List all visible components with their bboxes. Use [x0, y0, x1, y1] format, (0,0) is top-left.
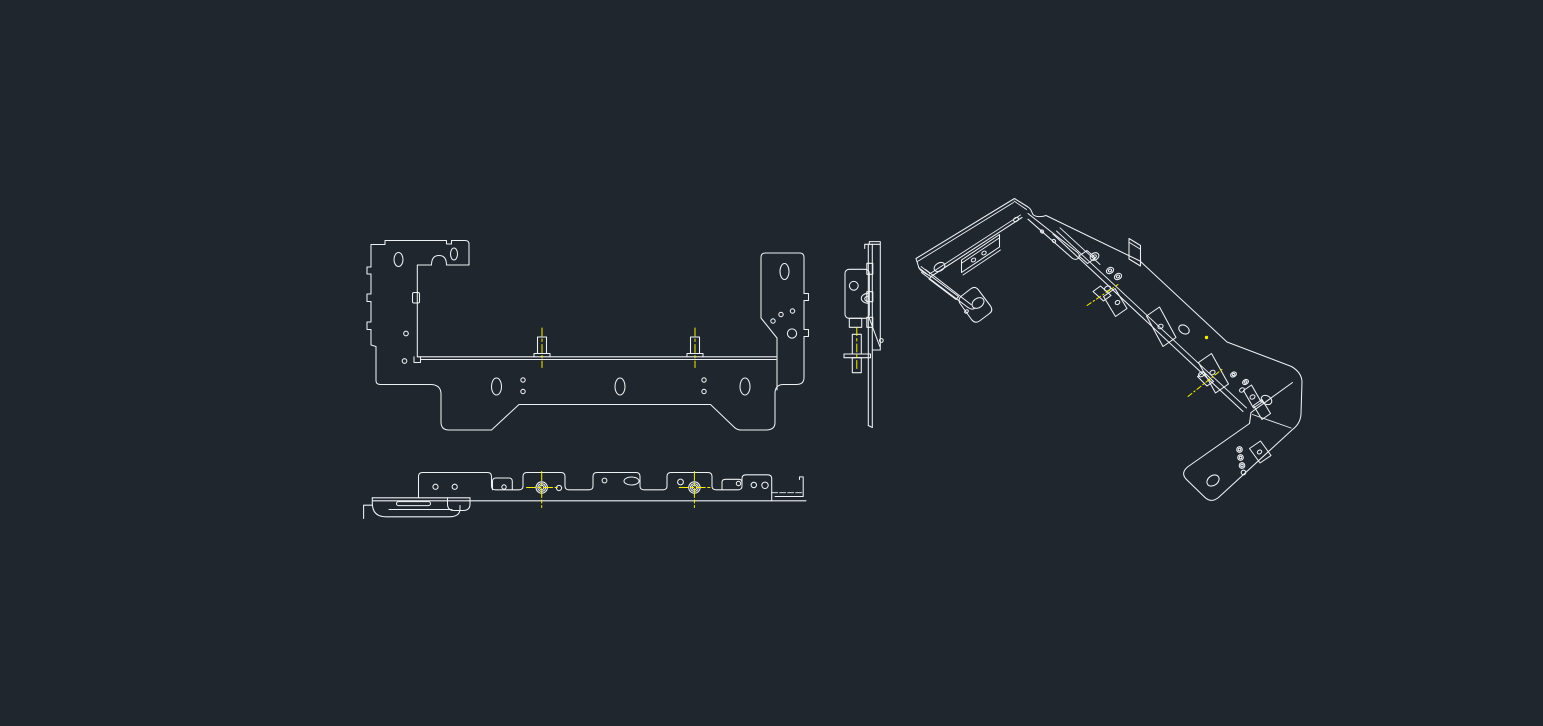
small-hole[interactable] [1157, 323, 1164, 329]
small-hole[interactable] [452, 484, 457, 489]
washer-ring[interactable] [1244, 380, 1247, 383]
front-flange-slot[interactable] [413, 293, 420, 304]
small-hole[interactable] [779, 312, 783, 316]
small-hole[interactable] [790, 309, 794, 313]
top-stud-left[interactable] [527, 472, 558, 508]
side-web-right-edge[interactable] [872, 244, 880, 350]
small-hole[interactable] [751, 482, 756, 487]
iso-hem-line[interactable] [1057, 231, 1247, 408]
washer-ring[interactable] [1116, 275, 1120, 279]
washer-ring[interactable] [1238, 455, 1244, 461]
small-hole[interactable] [678, 479, 684, 485]
iso-bend-edge[interactable] [1250, 413, 1252, 424]
oval-hole[interactable] [780, 264, 789, 280]
oval-hole[interactable] [451, 248, 458, 260]
small-hole[interactable] [771, 319, 775, 323]
iso-hem-edge[interactable] [922, 273, 969, 308]
front-outline[interactable] [367, 241, 809, 431]
top-flange-slot[interactable] [397, 502, 431, 506]
slot-hole[interactable] [624, 477, 639, 485]
oval-hole[interactable] [394, 253, 403, 267]
oval-hole[interactable] [492, 378, 502, 395]
iso-inner-tab-roll[interactable] [1129, 242, 1141, 249]
front-rail-end-tab[interactable] [414, 357, 421, 363]
small-hole[interactable] [702, 389, 706, 393]
washer-ring[interactable] [1108, 269, 1112, 273]
iso-arm-lower-edge-2[interactable] [930, 215, 1021, 274]
small-hole[interactable] [404, 331, 409, 336]
small-hole[interactable] [521, 389, 525, 393]
iso-hem-line[interactable] [1053, 234, 1243, 412]
small-hole[interactable] [762, 482, 768, 488]
small-hole[interactable] [702, 378, 706, 382]
small-hole[interactable] [1257, 449, 1263, 454]
small-hole[interactable] [1249, 394, 1256, 400]
round-hole[interactable] [849, 281, 858, 290]
iso-stud-right[interactable] [1198, 372, 1214, 386]
drawing-layer [0, 0, 1543, 726]
side-view[interactable] [844, 242, 883, 428]
washer-ring[interactable] [1230, 371, 1238, 378]
side-diagonal-edge[interactable] [869, 318, 880, 346]
iso-hem-slot[interactable] [929, 277, 959, 300]
washer-ring[interactable] [1105, 266, 1115, 275]
iso-foot-fold[interactable] [1253, 415, 1292, 429]
iso-shelf-edge[interactable] [1251, 383, 1293, 413]
top-left-flange-roll[interactable] [448, 498, 471, 511]
washer-ring[interactable] [1238, 448, 1241, 451]
oval-hole[interactable] [615, 378, 625, 395]
washer-ring[interactable] [1113, 272, 1123, 281]
washer-ring[interactable] [1241, 464, 1244, 467]
top-right-edge[interactable] [775, 477, 803, 497]
small-hole[interactable] [521, 378, 525, 382]
small-hole[interactable] [971, 257, 977, 262]
small-hole[interactable] [1052, 239, 1057, 243]
small-hole[interactable] [1114, 300, 1120, 306]
small-hole[interactable] [981, 250, 987, 255]
washer-ring[interactable] [1239, 456, 1242, 459]
cad-canvas[interactable] [0, 0, 1543, 726]
oval-hole[interactable] [1205, 473, 1221, 489]
oval-hole[interactable] [740, 378, 750, 395]
iso-tab[interactable] [1147, 307, 1177, 347]
washer-ring[interactable] [1239, 463, 1245, 469]
side-lower-tab[interactable] [849, 318, 861, 327]
top-stud-right[interactable] [679, 472, 710, 508]
small-hole[interactable] [402, 359, 407, 364]
snap-point-dot[interactable] [1205, 336, 1208, 339]
iso-ear-tab[interactable] [1244, 385, 1262, 408]
top-view[interactable] [364, 472, 806, 519]
iso-outline[interactable] [916, 199, 1302, 501]
small-hole[interactable] [433, 484, 438, 489]
side-bottom-cut[interactable] [868, 426, 872, 428]
round-hole[interactable] [787, 329, 796, 338]
small-hole[interactable] [736, 481, 740, 485]
front-view[interactable] [367, 241, 809, 431]
iso-inner-tab[interactable] [1129, 239, 1141, 267]
small-hole[interactable] [602, 478, 607, 483]
top-left-hook[interactable] [364, 505, 373, 518]
small-hole[interactable] [502, 485, 506, 489]
small-hole[interactable] [1013, 217, 1019, 223]
isometric-view[interactable] [916, 199, 1302, 501]
washer-ring[interactable] [1232, 373, 1235, 376]
oval-hole[interactable] [1177, 323, 1191, 336]
washer-ring[interactable] [1237, 447, 1243, 453]
washer-ring[interactable] [1242, 378, 1250, 385]
iso-stud-left-tip[interactable] [1104, 285, 1112, 292]
top-profile[interactable] [419, 473, 772, 501]
iso-corner-tab[interactable] [1028, 214, 1079, 260]
